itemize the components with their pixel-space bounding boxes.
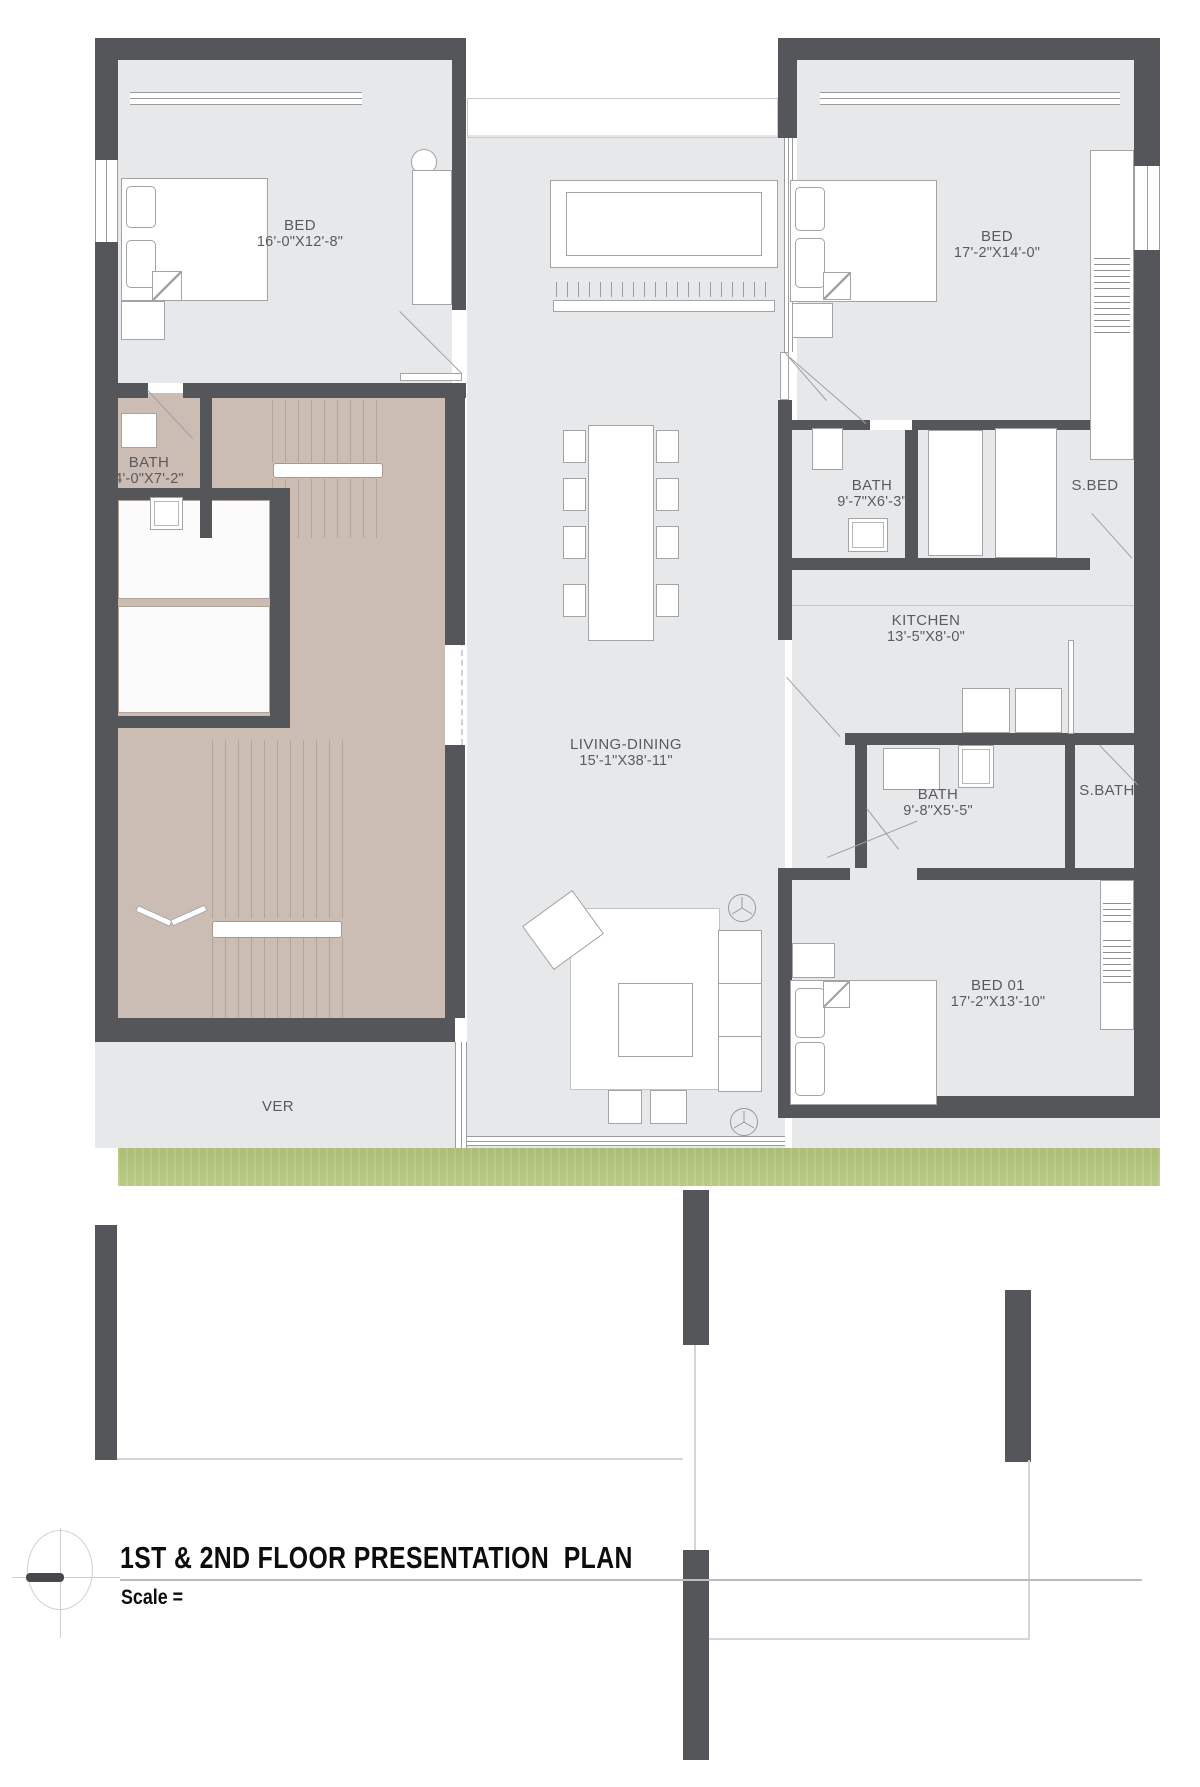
room-dims: 13'-5"X8'-0" (838, 629, 1014, 646)
room-label-s-bath: S.BATH (1048, 782, 1166, 799)
pillow (795, 1042, 825, 1096)
compass-icon (10, 1520, 122, 1650)
room-dims: 17'-2"X14'-0" (897, 245, 1097, 262)
wall-segment (1065, 745, 1075, 868)
dining-chair (656, 584, 679, 617)
dining-chair (656, 526, 679, 559)
wall-segment (95, 1018, 455, 1042)
sofa-cushion-divider (719, 1036, 761, 1037)
wall-segment (200, 398, 212, 538)
stair-landing-lower (212, 921, 342, 938)
room-label-kitchen: KITCHEN 13'-5"X8'-0" (838, 612, 1014, 646)
wall-segment (95, 716, 290, 728)
floor-right-wing-apron (792, 1118, 1160, 1148)
scale-label: Scale = (121, 1586, 183, 1610)
wall-segment (917, 868, 1160, 880)
room-label-bed-top-left: BED 16'-0"X12'-8" (215, 217, 385, 251)
ceiling-fan-icon (728, 894, 756, 922)
boundary-line (709, 1638, 1030, 1640)
washbasin (812, 428, 843, 470)
pillow (795, 238, 825, 288)
wardrobe-shelves (1103, 940, 1131, 986)
blanket-fold (823, 981, 850, 1008)
boundary-line (117, 1458, 683, 1460)
washbasin (121, 413, 157, 448)
toilet (848, 518, 888, 552)
window (95, 160, 118, 242)
stair-treads-lower-run1 (212, 740, 343, 918)
dining-chair (563, 430, 586, 463)
blanket-fold (152, 271, 182, 301)
sofa (718, 930, 762, 1092)
window (1134, 166, 1160, 250)
blanket-fold (823, 272, 851, 300)
stair-opening-dashed-line (461, 640, 463, 745)
wall-segment (270, 488, 290, 728)
room-dims: 16'-0"X12'-8" (215, 234, 385, 251)
room-label-bed-top-right: BED 17'-2"X14'-0" (897, 228, 1097, 262)
wall-segment (1134, 38, 1160, 166)
plan-title: 1ST & 2ND FLOOR PRESENTATION PLAN (120, 1540, 633, 1576)
wall-segment (1134, 420, 1160, 1108)
pillow (795, 187, 825, 231)
room-name: VER (228, 1098, 328, 1115)
kitchen-counter (1015, 688, 1062, 733)
wall-segment (95, 242, 118, 388)
wardrobe-shelves (1094, 296, 1130, 336)
dining-table (588, 425, 654, 641)
media-shelf (553, 300, 775, 312)
room-name: BATH (97, 454, 201, 471)
room-label-living-dining: LIVING-DINING 15'-1"X38'-11" (538, 736, 714, 770)
pillow (126, 186, 156, 228)
nightstand (792, 943, 835, 978)
ceiling-fan-icon (730, 1108, 758, 1136)
door-leaf (780, 352, 789, 400)
compound-wall-stub (683, 1550, 709, 1760)
ottoman (608, 1090, 642, 1124)
room-dims: 4'-0"X7'-2" (97, 471, 201, 488)
stair-treads-lower-run2 (212, 938, 343, 1018)
sofa-cushion-divider (719, 983, 761, 984)
room-dims: 17'-2"X13'-10" (908, 994, 1088, 1011)
compound-wall-stub (95, 1225, 117, 1460)
toilet (958, 745, 994, 788)
stair-landing-upper (273, 463, 383, 478)
room-name: BED 01 (908, 977, 1088, 994)
compass-axis-vertical (60, 1528, 61, 1638)
door-leaf (400, 373, 462, 381)
kitchen-counter (962, 688, 1010, 733)
wall-segment (445, 745, 465, 1018)
floor-plan-canvas: BED 16'-0"X12'-8" BED 17'-2"X14'-0" BATH… (0, 0, 1200, 1787)
window (467, 1136, 785, 1146)
coffee-table (618, 983, 693, 1057)
wall-segment (778, 400, 792, 640)
window (455, 1042, 467, 1148)
wall-segment (855, 745, 867, 868)
wardrobe-shelves (1103, 903, 1131, 927)
floor-verandah (95, 1042, 460, 1148)
washbasin (883, 748, 940, 790)
dining-chair (563, 526, 586, 559)
grass-strip (118, 1148, 1160, 1186)
room-label-s-bed: S.BED (1040, 477, 1150, 494)
wall-segment (845, 733, 1160, 745)
wardrobe-shelves (1094, 258, 1130, 290)
room-name: BATH (812, 477, 932, 494)
ottoman (650, 1090, 687, 1124)
window (820, 92, 1120, 105)
boundary-line (694, 1345, 696, 1550)
room-name: BED (215, 217, 385, 234)
room-label-verandah: VER (228, 1098, 328, 1115)
room-dims: 9'-8"X5'-5" (870, 803, 1006, 820)
lift-shaft-2 (118, 606, 270, 713)
stair-treads-upper-run1 (272, 400, 385, 462)
single-bed (928, 430, 983, 556)
toilet (150, 497, 183, 530)
dining-chair (563, 478, 586, 511)
wall-segment (792, 558, 1090, 570)
wall-segment (1134, 250, 1160, 420)
wall-segment (183, 383, 466, 398)
wall-segment (95, 488, 290, 500)
dining-chair (563, 584, 586, 617)
shoe-rack-grille (556, 282, 771, 297)
dining-chair (656, 430, 679, 463)
room-name: BED (897, 228, 1097, 245)
dining-chair (656, 478, 679, 511)
room-name: S.BATH (1048, 782, 1166, 799)
compass-north-bar (26, 1573, 64, 1582)
wardrobe (412, 170, 452, 305)
room-label-bath-left: BATH 4'-0"X7'-2" (97, 454, 201, 488)
room-name: S.BED (1040, 477, 1150, 494)
wall-segment (792, 38, 1160, 60)
window (130, 92, 362, 105)
room-name: LIVING-DINING (538, 736, 714, 753)
wall-segment (452, 38, 466, 310)
wall-segment (95, 38, 466, 60)
kitchen-counter-edge (1068, 640, 1074, 734)
media-console-inner (566, 192, 762, 256)
room-dims: 15'-1"X38'-11" (538, 753, 714, 770)
porch-outline (467, 98, 778, 138)
room-label-bed-01: BED 01 17'-2"X13'-10" (908, 977, 1088, 1011)
wall-segment (445, 383, 465, 645)
lift-shaft-1 (118, 500, 270, 599)
nightstand (121, 301, 165, 340)
compound-wall-stub (1005, 1290, 1031, 1462)
room-label-bath-mid: BATH 9'-7"X6'-3" (812, 477, 932, 511)
nightstand (792, 303, 833, 338)
kitchen-boundary-line (792, 605, 1134, 606)
wall-segment (95, 38, 118, 160)
title-underline (120, 1579, 1142, 1581)
room-name: BATH (870, 786, 1006, 803)
wall-segment (778, 38, 797, 138)
room-name: KITCHEN (838, 612, 1014, 629)
room-label-bath-lower: BATH 9'-8"X5'-5" (870, 786, 1006, 820)
boundary-line (1028, 1460, 1030, 1640)
room-dims: 9'-7"X6'-3" (812, 494, 932, 511)
pillow (795, 988, 825, 1038)
compound-wall-stub (683, 1190, 709, 1345)
